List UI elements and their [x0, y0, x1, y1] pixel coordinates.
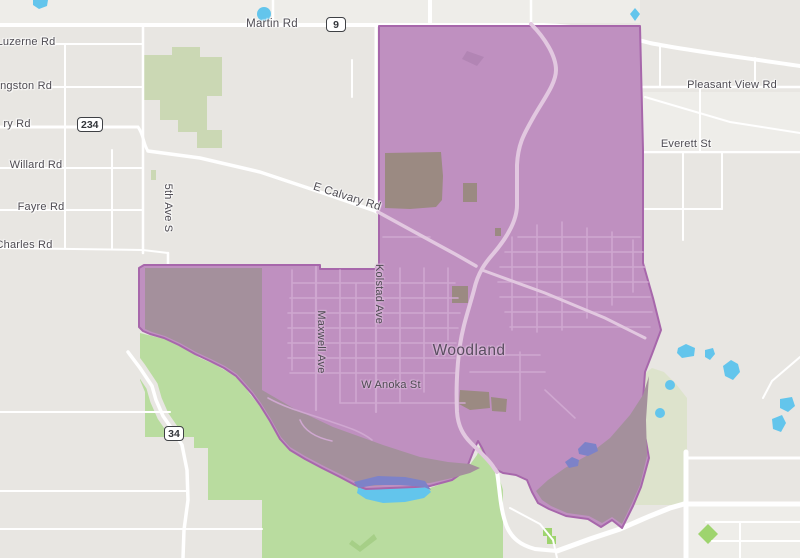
building	[452, 286, 468, 303]
building	[491, 397, 507, 412]
pond	[655, 408, 665, 418]
building	[385, 152, 443, 209]
road-label-martin-rd: Martin Rd	[246, 18, 298, 30]
highway-shield-34: 34	[164, 426, 184, 441]
place-label-woodland: Woodland	[433, 342, 506, 360]
map-canvas[interactable]: Martin Rd Luzerne Rd Kingston Rd ry Rd W…	[0, 0, 800, 558]
road-label-kolstad-ave: Kolstad Ave	[373, 264, 385, 324]
road-label-ry-rd: ry Rd	[3, 118, 30, 130]
road-label-maxwell-ave: Maxwell Ave	[315, 310, 327, 373]
building	[463, 183, 477, 202]
road-label-fayre-rd: Fayre Rd	[18, 201, 65, 213]
highway-shield-9: 9	[326, 17, 346, 32]
road-label-kingston-rd: Kingston Rd	[0, 80, 52, 92]
road-label-luzerne-rd: Luzerne Rd	[0, 36, 55, 48]
road-label-willard-rd: Willard Rd	[10, 159, 63, 171]
road-label-charles-rd: Charles Rd	[0, 239, 53, 251]
road-label-pleasant-view-rd: Everett St	[661, 138, 711, 150]
road-label-elk-st: Pleasant View Rd	[687, 79, 777, 91]
pond	[665, 380, 675, 390]
map-tiles	[0, 0, 800, 558]
highway-shield-234: 234	[77, 117, 103, 132]
road-label-5th-ave-s: 5th Ave S	[162, 184, 174, 233]
park-area	[151, 170, 156, 180]
building	[495, 228, 501, 236]
road-label-w-anoka-st: W Anoka St	[361, 379, 420, 391]
